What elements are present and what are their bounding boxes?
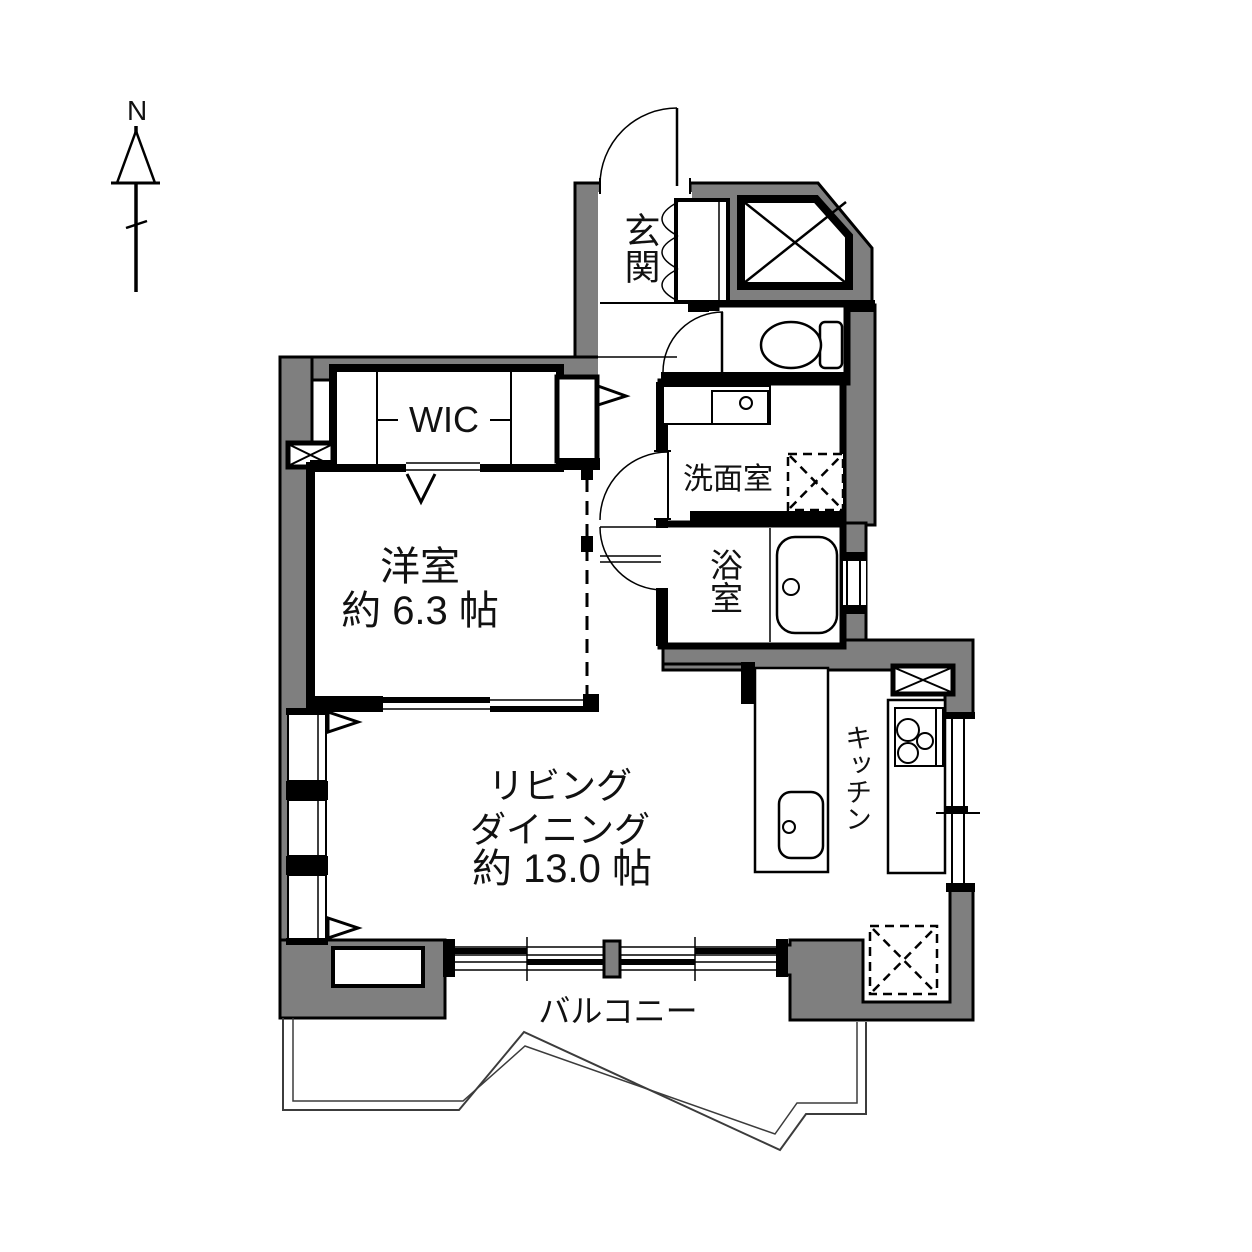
kitchen-island-icon	[755, 668, 828, 872]
bathtub-icon	[777, 537, 837, 633]
entry-door-arc-icon	[600, 108, 677, 185]
balcony-outline	[283, 1018, 866, 1150]
western-room-label: 洋室	[380, 545, 460, 589]
toilet-door-opening	[709, 311, 722, 373]
floorplan-page: { "compass": { "label": "N" }, "rooms": …	[0, 0, 1252, 1252]
wic-opening	[406, 460, 480, 474]
bathroom-label: 浴室	[706, 548, 743, 614]
vent-window-arrow-bottom-icon	[328, 918, 358, 938]
stove-counter-icon	[888, 700, 945, 873]
washer-space-icon	[788, 454, 843, 510]
toilet-icon	[761, 322, 842, 368]
wic-door-v-icon	[407, 474, 435, 502]
entrance-label: 玄関	[620, 212, 661, 284]
sliding-door-west-icon	[306, 694, 599, 712]
shaft-icon	[741, 199, 849, 286]
wall-western-topleft	[310, 460, 335, 472]
vanity-sink-icon	[663, 386, 770, 424]
compass-label: N	[127, 95, 147, 126]
kitchen-label: キッチン	[841, 724, 871, 832]
hall-closet	[557, 377, 597, 461]
kitchen-ps-box-icon	[893, 666, 953, 694]
wall-western-topright	[557, 458, 600, 470]
north-arrow-icon	[111, 126, 160, 292]
washroom-label: 洗面室	[683, 463, 773, 496]
floorplan-svg: N 玄関 WIC 洗面室 浴室 洋室 約 6.3 帖 リビング ダイニング 約 …	[0, 0, 1252, 1252]
partition-stop-top	[581, 467, 593, 480]
bath-door-opening	[654, 528, 671, 588]
wall-living-top-stub	[741, 662, 755, 704]
partition-stop-mid	[581, 536, 593, 552]
living-label-line2: ダイニング	[470, 809, 650, 850]
wic-label: WIC	[409, 399, 479, 440]
left-window-bays	[286, 708, 328, 945]
living-size: 約 13.0 帖	[472, 847, 652, 891]
wall-bath-top	[690, 511, 843, 526]
balcony-sliding-door-icon	[443, 937, 788, 981]
wall-western-left	[306, 462, 315, 712]
vent-window-arrow-top-icon	[328, 712, 358, 732]
fridge-space-icon	[870, 926, 937, 994]
western-room-size: 約 6.3 帖	[341, 589, 499, 633]
living-label-line1: リビング	[488, 765, 632, 806]
balcony-label: バルコニー	[538, 993, 697, 1029]
bath-window-icon	[841, 552, 866, 614]
balcony-door-pocket	[333, 948, 423, 986]
